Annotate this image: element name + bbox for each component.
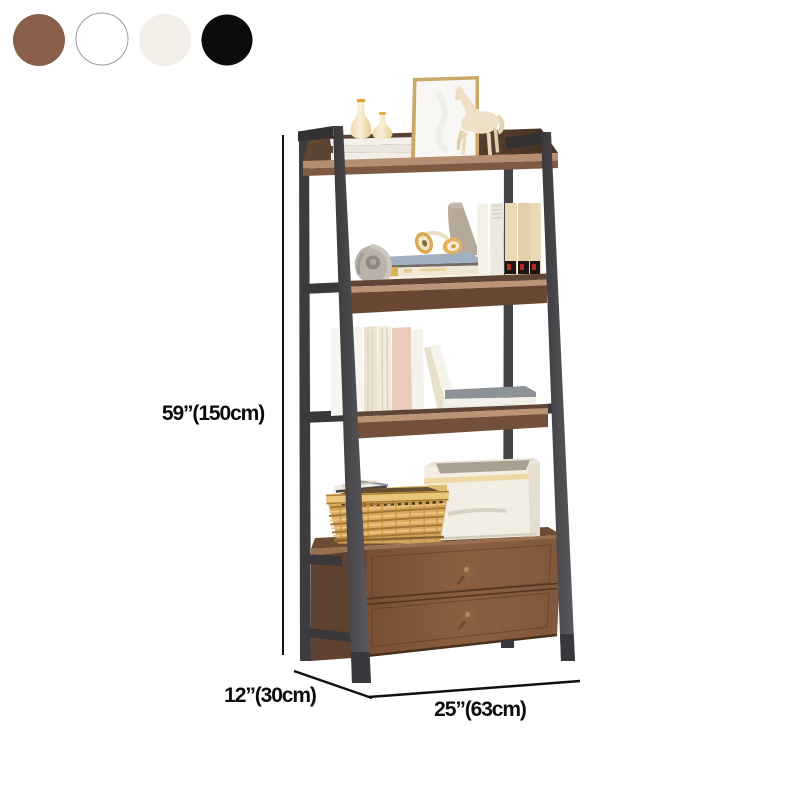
svg-text:59”(150cm): 59”(150cm) (162, 402, 264, 425)
svg-text:25”(63cm): 25”(63cm) (434, 698, 526, 721)
svg-text:12”(30cm): 12”(30cm) (224, 684, 316, 707)
